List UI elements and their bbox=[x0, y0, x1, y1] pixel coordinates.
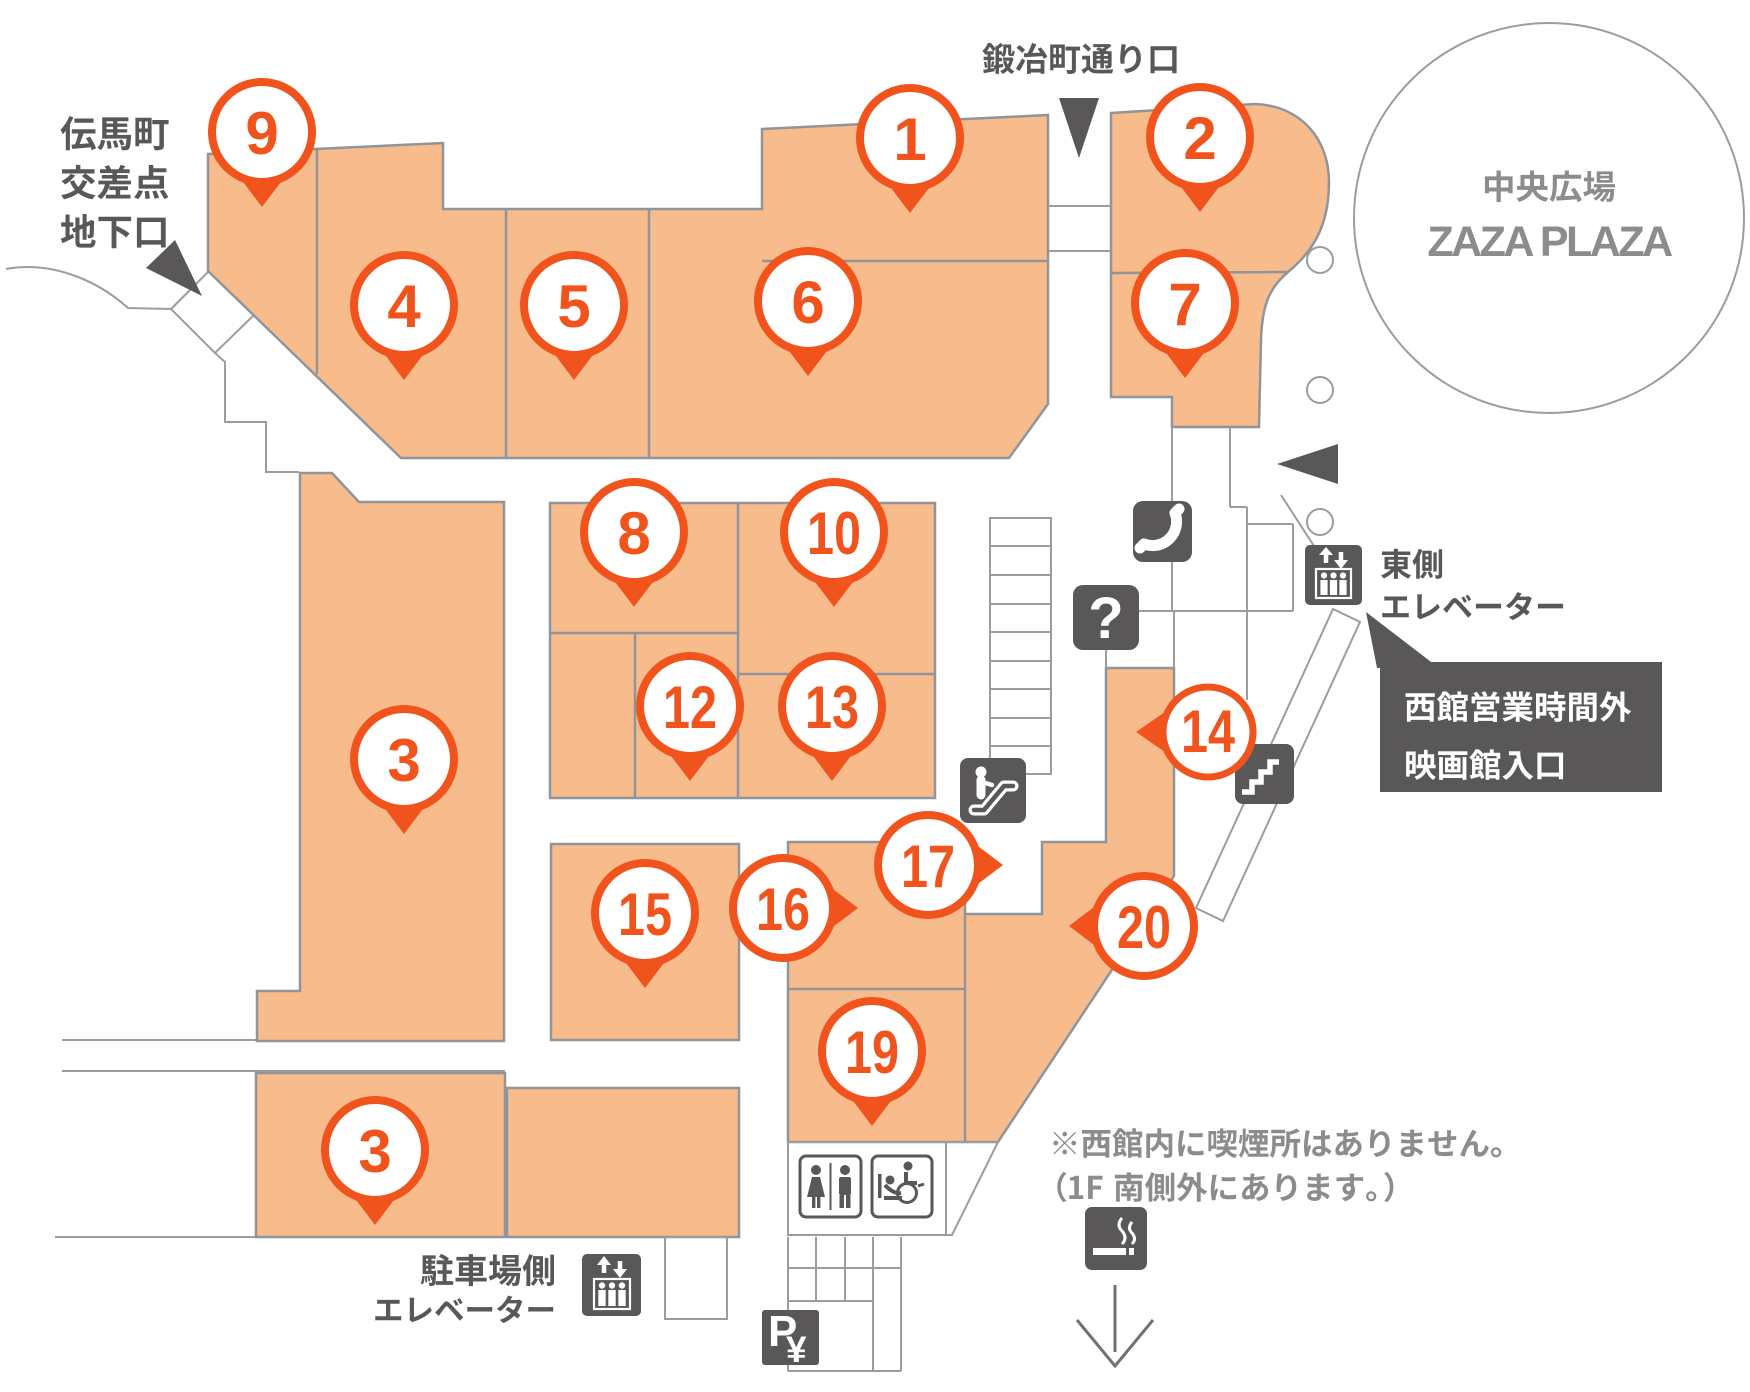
svg-text:8: 8 bbox=[617, 500, 650, 567]
svg-text:10: 10 bbox=[807, 500, 861, 567]
svg-text:15: 15 bbox=[618, 881, 672, 948]
svg-text:19: 19 bbox=[845, 1019, 899, 1086]
svg-text:3: 3 bbox=[358, 1118, 391, 1185]
svg-text:2: 2 bbox=[1183, 105, 1216, 172]
svg-text:16: 16 bbox=[756, 876, 810, 943]
svg-text:1: 1 bbox=[893, 106, 926, 173]
svg-text:¥: ¥ bbox=[786, 1329, 807, 1370]
svg-text:13: 13 bbox=[805, 674, 859, 741]
svg-text:20: 20 bbox=[1117, 894, 1171, 961]
svg-text:12: 12 bbox=[663, 674, 717, 741]
svg-text:6: 6 bbox=[791, 269, 824, 336]
svg-text:9: 9 bbox=[245, 100, 278, 167]
svg-text:3: 3 bbox=[387, 727, 420, 794]
svg-text:5: 5 bbox=[557, 273, 590, 340]
svg-text:14: 14 bbox=[1181, 698, 1236, 765]
svg-text:?: ? bbox=[1088, 586, 1123, 651]
svg-text:4: 4 bbox=[387, 273, 421, 340]
svg-text:7: 7 bbox=[1168, 271, 1201, 338]
svg-text:17: 17 bbox=[901, 833, 955, 900]
svg-text:ZAZA PLAZA: ZAZA PLAZA bbox=[1427, 218, 1672, 266]
